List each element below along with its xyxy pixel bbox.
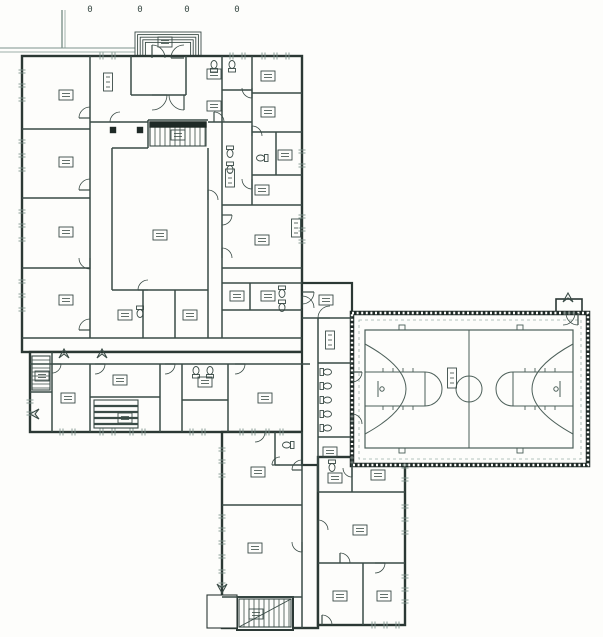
block-southeast-wing bbox=[318, 457, 405, 625]
floor-plan-scan-page: 0000 bbox=[0, 0, 603, 637]
gym-wall bbox=[352, 313, 588, 465]
gym-outer-wall bbox=[352, 313, 588, 465]
site-marker-zero: 0 bbox=[137, 5, 142, 15]
site-marker-zero: 0 bbox=[87, 5, 92, 15]
site-lines bbox=[0, 10, 135, 52]
column bbox=[138, 128, 143, 133]
site-marker-zero: 0 bbox=[184, 5, 189, 15]
block-south-porch bbox=[207, 595, 237, 628]
column bbox=[111, 128, 116, 133]
site-marker-zero: 0 bbox=[234, 5, 239, 15]
site-markers: 0000 bbox=[87, 5, 239, 15]
floor-plan-svg: 0000 bbox=[0, 0, 603, 637]
entry-steps bbox=[135, 32, 201, 56]
